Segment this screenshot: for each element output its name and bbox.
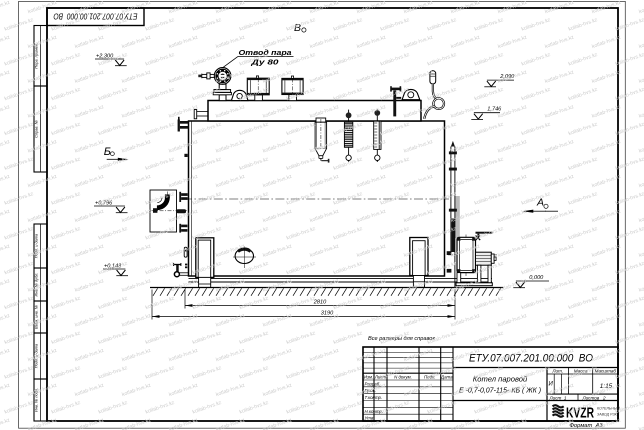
svg-text:Утв.: Утв. [365, 416, 375, 421]
svg-text:Масштаб: Масштаб [595, 369, 617, 374]
svg-text:Б: Б [104, 146, 111, 158]
svg-text:Лит.: Лит. [551, 369, 563, 374]
svg-text:0,000: 0,000 [529, 275, 544, 281]
svg-text:И: И [548, 382, 553, 388]
svg-text:Т.контр.: Т.контр. [365, 395, 383, 400]
svg-text:Изм.: Изм. [364, 375, 373, 380]
svg-text:1,746: 1,746 [487, 107, 502, 113]
svg-text:ЗАВОД РЗК: ЗАВОД РЗК [597, 413, 618, 417]
svg-text:Справ. №: Справ. № [34, 119, 39, 137]
svg-text:ЕТУ.07.007.201.00.000 ВО: ЕТУ.07.007.201.00.000 ВО [469, 353, 593, 365]
